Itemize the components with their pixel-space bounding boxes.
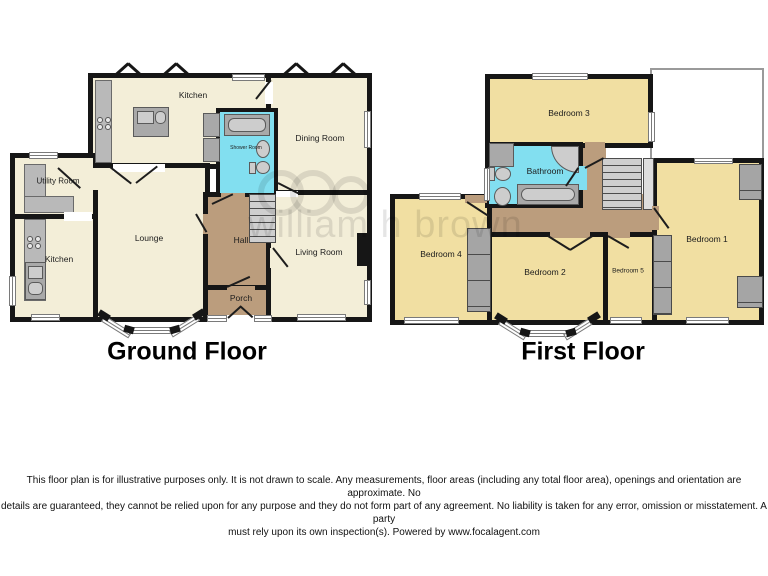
watermark-text: william h brown (248, 204, 523, 247)
window (31, 314, 60, 321)
window (419, 193, 461, 200)
window (364, 280, 371, 305)
window (404, 317, 459, 324)
window (484, 168, 490, 201)
window (694, 158, 733, 164)
bath-inner (521, 188, 575, 201)
ground-floor-title: Ground Floor (107, 338, 267, 367)
window (610, 317, 642, 324)
window (532, 73, 588, 80)
toilet-icon (256, 161, 270, 174)
label-shower: Shower Room (230, 145, 262, 151)
stair-railing (643, 158, 654, 210)
label-bedroom3: Bedroom 3 (548, 108, 590, 118)
wardrobe (653, 235, 672, 315)
utility-counter (24, 196, 74, 213)
window (29, 152, 58, 159)
cupboard (489, 143, 514, 167)
wall-opening (113, 164, 165, 172)
wardrobe (739, 164, 762, 200)
kitchen-unit (203, 113, 220, 137)
toilet-cistern (249, 162, 256, 174)
first-floor-title: First Floor (521, 338, 645, 367)
bath-inner (228, 118, 266, 132)
label-porch: Porch (230, 293, 252, 303)
window (686, 317, 729, 324)
label-living: Living Room (295, 247, 342, 257)
hob-icon (97, 117, 112, 130)
room-bedroom5 (603, 232, 657, 325)
wall-opening (93, 168, 99, 190)
wall-opening (579, 166, 587, 190)
wall-opening (585, 142, 605, 149)
label-utility: Utility Room (36, 177, 79, 186)
window (9, 276, 16, 306)
wall-opening (550, 232, 590, 238)
label-bedroom2: Bedroom 2 (524, 267, 566, 277)
disclaimer-text: This floor plan is for illustrative purp… (0, 474, 768, 539)
label-kitchen-left: Kitchen (45, 254, 73, 264)
drainer-icon (28, 266, 43, 279)
window (254, 315, 272, 322)
label-lounge: Lounge (135, 233, 163, 243)
disclaimer-line-1: This floor plan is for illustrative purp… (0, 474, 768, 500)
sink-icon (28, 282, 43, 295)
label-kitchen-top: Kitchen (179, 90, 207, 100)
bay-window (129, 327, 175, 334)
window (207, 315, 227, 322)
stairs-icon (602, 158, 642, 210)
disclaimer-line-3: must rely upon its own inspection(s). Po… (0, 526, 768, 539)
hob-icon (27, 236, 42, 249)
toilet-icon (495, 167, 511, 181)
label-bedroom1: Bedroom 1 (686, 234, 728, 244)
sink-icon (155, 111, 166, 124)
label-bathroom: Bathroom (527, 166, 564, 176)
window (364, 111, 371, 148)
label-bedroom5: Bedroom 5 (612, 268, 644, 275)
window (297, 314, 346, 321)
wall-opening (64, 212, 92, 221)
label-hall: Hall (234, 235, 249, 245)
wall-opening (227, 286, 255, 292)
flat-roof-outline (650, 68, 764, 163)
kitchen-unit (203, 138, 220, 162)
drainer-icon (137, 111, 154, 124)
disclaimer-line-2: details are guaranteed, they cannot be r… (0, 500, 768, 526)
wall-stub (565, 328, 577, 337)
label-dining: Dining Room (295, 133, 344, 143)
floorplan-canvas: william h brown Kitchen Dining Room Show… (0, 0, 768, 576)
window (232, 74, 265, 81)
wardrobe (737, 276, 763, 308)
label-bedroom4: Bedroom 4 (420, 249, 462, 259)
window (648, 112, 655, 142)
